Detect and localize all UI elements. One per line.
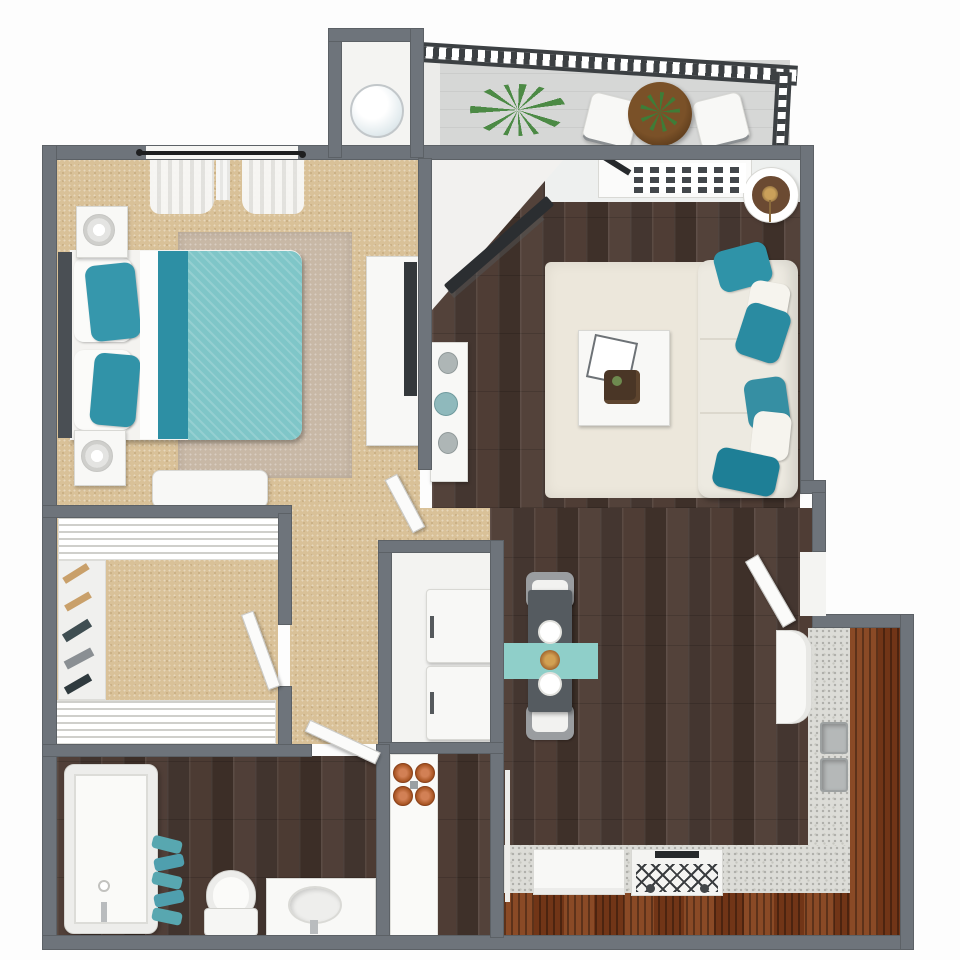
wall-bottom [42,935,914,950]
coffee-table-decor [604,370,640,404]
centerpiece [540,650,560,670]
planter-stem [769,200,771,222]
wall-closet-bottom-bath-top [42,744,312,757]
headboard [58,252,72,438]
hallway-floor [290,508,378,744]
sink-basin-top [820,722,848,754]
closet-shelf-top [58,514,282,560]
washer [426,589,496,663]
water-heater [350,84,404,138]
sink-faucet [310,920,318,934]
balcony-wall-stub [424,62,440,146]
curtain-rod-cap-right [299,151,306,158]
wall-closet-right-upper [278,513,292,625]
curtain-rod-cap-left [136,149,143,156]
teal-pillow-bottom [89,352,141,428]
wall-wh-closet-left [328,28,342,158]
fern-plant [470,84,566,136]
decor-greenery [612,376,622,386]
console-vase-3 [438,432,458,454]
toilet-tank [204,908,258,936]
tub-faucet [101,902,107,922]
wall-right-mid [812,492,826,552]
bed [58,246,302,444]
wall-left [42,145,57,950]
range-knob-1 [646,884,655,893]
wall-laundry-top [378,540,504,553]
teal-stripe [158,251,190,439]
sink-basin-bottom [820,758,848,792]
lamp-bottom [81,440,113,472]
range-knob-2 [700,884,709,893]
teal-pillow-top [84,262,142,343]
floor-plan [0,0,960,960]
curtain-left [150,158,214,214]
range-vent-bar [655,851,699,858]
wall-right-upper [800,145,814,488]
console-vase-2 [434,392,458,416]
cooktop-burner-2 [415,763,435,783]
bathtub [64,764,158,934]
wall-bathroom-right [376,744,390,936]
lamp-top [83,214,115,246]
entry-threshold [800,552,826,616]
plate-bottom [538,672,562,696]
tub-drain [98,880,110,892]
cooktop-burner-3 [393,786,413,806]
dresser-tv [404,262,417,396]
bistro-table-plant [640,92,680,132]
wall-bed-living-divider [418,158,432,470]
duvet [188,251,302,440]
wall-dining-divider [490,540,504,938]
washer-handle [430,616,434,638]
console-vase-1 [438,352,458,374]
cooktop-burner-4 [415,786,435,806]
wall-laundry-left [378,540,392,744]
nook-door-sliver [505,770,510,902]
vent-slats [634,163,746,193]
kitchen-bar-right [848,628,900,936]
plate-top [538,620,562,644]
curtain-rod [140,151,302,155]
dryer-handle [430,692,434,714]
wall-kitchen-top [812,614,914,628]
wall-nook-top [378,742,504,754]
refrigerator [776,630,812,724]
wall-bedroom-bottom [42,505,292,518]
curtain-center [216,158,230,200]
foot-bench [152,470,268,508]
sink-basin [288,886,342,924]
kitchen-bar-bottom [504,893,850,936]
dishwasher [533,849,625,895]
wall-closet-right-lower [278,686,292,748]
closet-shelf-bottom [56,700,276,744]
wall-kitchen-right [900,614,914,950]
cooktop-center [410,781,418,789]
wall-wh-closet-right [410,28,424,158]
dryer [426,666,496,740]
cooktop-burner-1 [393,763,413,783]
curtain-right [242,158,304,214]
sheet-fold [140,251,160,439]
